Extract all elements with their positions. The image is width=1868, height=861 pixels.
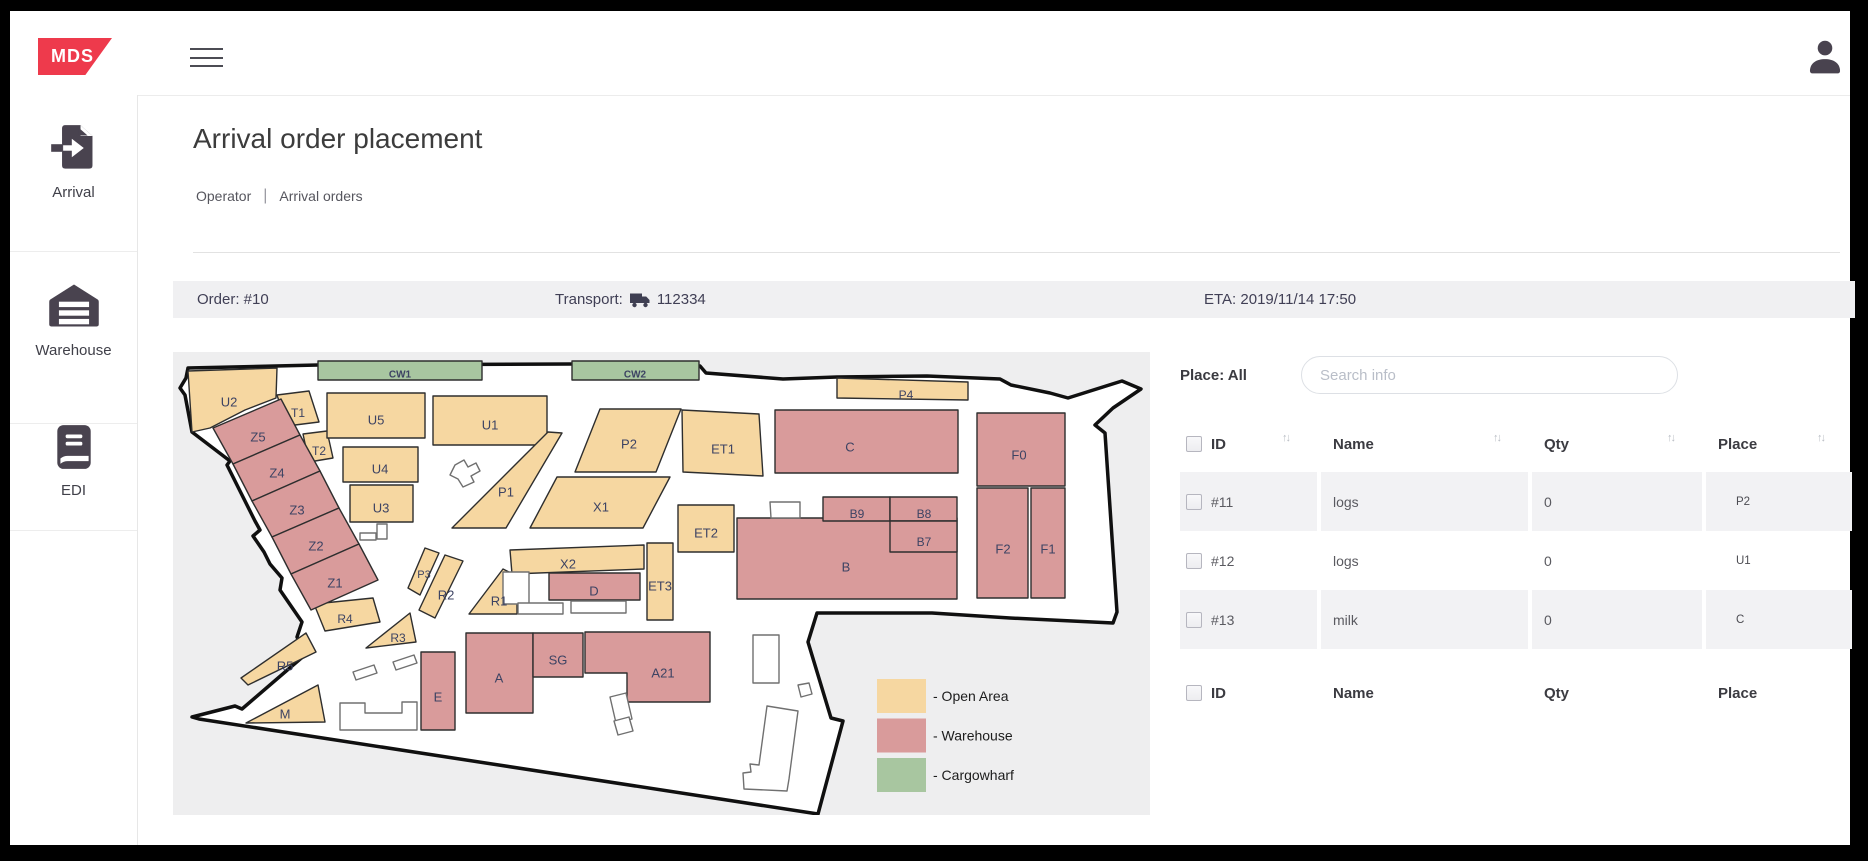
- zone-label-D: D: [589, 584, 598, 599]
- cell-name: milk: [1321, 612, 1358, 628]
- warehouse-icon: [46, 318, 102, 335]
- zone-label-R4: R4: [337, 612, 353, 626]
- zone-label-U4: U4: [372, 462, 389, 477]
- cell-name: logs: [1321, 553, 1359, 569]
- cell-qty: 0: [1532, 612, 1552, 628]
- cell-id: #11: [1211, 494, 1233, 510]
- legend-label: - Cargowharf: [933, 767, 1014, 783]
- cell-place: C: [1706, 614, 1744, 626]
- outline-building-0: [377, 524, 387, 539]
- zone-label-T2: T2: [312, 444, 326, 458]
- zone-X2[interactable]: [510, 545, 644, 574]
- sort-icon[interactable]: ↑↓: [1817, 432, 1824, 444]
- cell-qty: 0: [1532, 494, 1552, 510]
- zone-label-A21: A21: [651, 666, 674, 681]
- zone-label-R1: R1: [491, 594, 508, 609]
- sidebar-item-label: Arrival: [10, 184, 137, 201]
- legend-swatch-open: [877, 679, 926, 713]
- zone-label-Z3: Z3: [289, 503, 304, 518]
- table-row[interactable]: #11 logs 0 P2: [1180, 472, 1852, 531]
- zone-label-T1: T1: [291, 406, 305, 420]
- zone-label-U2: U2: [221, 395, 238, 410]
- warehouse-map: CW1CW2U2T1T2U5U4U3U1P1P2X1X2P3R2R1R4R3R5…: [173, 352, 1150, 815]
- sidebar-item-label: Warehouse: [10, 342, 137, 359]
- cell-id: #13: [1211, 612, 1234, 628]
- zone-label-F1: F1: [1040, 542, 1055, 557]
- sidebar-item-arrival[interactable]: Arrival: [10, 123, 137, 201]
- truck-icon: [629, 292, 651, 308]
- footer-header-name: Name: [1321, 674, 1528, 712]
- zone-label-U1: U1: [482, 418, 499, 433]
- sidebar: Arrival Warehouse: [10, 95, 138, 845]
- zone-label-E: E: [434, 690, 443, 705]
- zone-label-ET1: ET1: [711, 442, 735, 457]
- sort-icon[interactable]: ↑↓: [1282, 432, 1289, 444]
- legend-label: - Open Area: [933, 688, 1009, 704]
- sidebar-divider: [10, 530, 137, 531]
- transport-number: 112334: [657, 291, 706, 308]
- outline-building-6: [770, 502, 800, 518]
- sidebar-item-warehouse[interactable]: Warehouse: [10, 281, 137, 359]
- app-window: MDS Arrival: [10, 11, 1850, 845]
- cell-place: U1: [1706, 555, 1751, 567]
- outline-building-1: [360, 533, 376, 540]
- zone-label-Z1: Z1: [327, 576, 342, 591]
- breadcrumb: Operator | Arrival orders: [196, 187, 363, 205]
- zone-label-Z5: Z5: [250, 430, 265, 445]
- breadcrumb-separator: |: [263, 187, 267, 205]
- zone-label-ET2: ET2: [694, 526, 718, 541]
- sort-icon[interactable]: ↑↓: [1493, 432, 1500, 444]
- arrival-document-icon: [49, 160, 99, 177]
- column-header-id[interactable]: ID ↑↓: [1180, 426, 1317, 462]
- eta-info: ETA: 2019/11/14 17:50: [1204, 281, 1356, 318]
- zone-label-SG: SG: [549, 653, 568, 668]
- column-header-place[interactable]: Place ↑↓: [1706, 426, 1852, 462]
- zone-label-F0: F0: [1011, 448, 1026, 463]
- row-checkbox[interactable]: [1186, 612, 1202, 628]
- zone-label-M: M: [280, 707, 291, 722]
- row-checkbox[interactable]: [1186, 553, 1202, 569]
- select-all-checkbox[interactable]: [1186, 436, 1202, 452]
- zone-label-CW1: CW1: [389, 370, 412, 381]
- warehouse-map-svg: CW1CW2U2T1T2U5U4U3U1P1P2X1X2P3R2R1R4R3R5…: [173, 352, 1150, 815]
- legend-swatch-cargowharf: [877, 758, 926, 792]
- zone-label-U5: U5: [368, 413, 385, 428]
- zone-label-R5: R5: [277, 659, 294, 674]
- edi-book-icon: [51, 458, 97, 475]
- zone-label-F2: F2: [995, 542, 1010, 557]
- zone-label-CW2: CW2: [624, 370, 647, 381]
- zone-label-Z4: Z4: [269, 466, 284, 481]
- user-profile-icon[interactable]: [1806, 34, 1844, 78]
- zone-label-B7: B7: [917, 535, 932, 549]
- outline-building-5: [571, 601, 626, 613]
- legend-swatch-warehouse: [877, 719, 926, 753]
- table-row[interactable]: #12 logs 0 U1: [1180, 531, 1852, 590]
- breadcrumb-operator[interactable]: Operator: [196, 188, 251, 204]
- zone-label-C: C: [845, 440, 854, 455]
- sort-icon[interactable]: ↑↓: [1667, 432, 1674, 444]
- zone-label-P4: P4: [899, 388, 914, 402]
- outline-building-14: [614, 717, 633, 735]
- outline-building-4: [518, 603, 563, 614]
- table-header-row: ID ↑↓ Name ↑↓ Qty ↑↓ Place ↑↓: [1180, 426, 1852, 462]
- transport-label: Transport:: [555, 291, 623, 308]
- zone-label-A: A: [495, 671, 504, 686]
- sidebar-item-edi[interactable]: EDI: [10, 423, 137, 499]
- zone-label-P1: P1: [498, 485, 514, 500]
- order-number: Order: #10: [197, 281, 269, 318]
- zone-label-X1: X1: [593, 500, 609, 515]
- screenshot-frame: MDS Arrival: [0, 0, 1868, 861]
- zone-label-X2: X2: [560, 557, 576, 572]
- footer-header-place: Place: [1706, 674, 1852, 712]
- column-header-qty[interactable]: Qty ↑↓: [1532, 426, 1702, 462]
- zone-label-R2: R2: [438, 588, 455, 603]
- outline-building-8: [798, 683, 812, 697]
- zone-label-Z2: Z2: [308, 539, 323, 554]
- breadcrumb-arrival-orders[interactable]: Arrival orders: [279, 188, 362, 204]
- top-bar: MDS: [10, 11, 1850, 96]
- search-input[interactable]: [1301, 356, 1678, 394]
- sidebar-divider: [10, 251, 137, 252]
- order-info-bar: Order: #10 Transport: 112334 ETA: 2019/1…: [173, 281, 1855, 318]
- zone-label-R3: R3: [390, 631, 406, 645]
- cell-place: P2: [1706, 496, 1750, 508]
- outline-building-7: [753, 635, 779, 683]
- legend-label: - Warehouse: [933, 728, 1013, 744]
- cell-name: logs: [1321, 494, 1359, 510]
- zone-label-P2: P2: [621, 437, 637, 452]
- table-row[interactable]: #13 milk 0 C: [1180, 590, 1852, 649]
- sidebar-item-label: EDI: [10, 482, 137, 499]
- zone-C[interactable]: [775, 410, 958, 473]
- cell-qty: 0: [1532, 553, 1552, 569]
- column-header-name[interactable]: Name ↑↓: [1321, 426, 1528, 462]
- heading-divider: [193, 252, 1840, 253]
- table-footer-row: ID Name Qty Place: [1180, 674, 1852, 712]
- row-checkbox[interactable]: [1186, 494, 1202, 510]
- zone-label-B8: B8: [917, 507, 932, 521]
- zone-label-ET3: ET3: [648, 579, 672, 594]
- footer-header-qty: Qty: [1532, 674, 1702, 712]
- transport-info: Transport: 112334: [555, 281, 706, 318]
- mds-logo[interactable]: MDS: [38, 38, 112, 75]
- footer-header-id: ID: [1180, 674, 1317, 712]
- page-title: Arrival order placement: [193, 123, 482, 155]
- zone-label-B: B: [842, 560, 851, 575]
- table-body: #11 logs 0 P2 #12 logs 0 U1 #13 milk 0 C: [1180, 472, 1852, 649]
- place-filter-label[interactable]: Place: All: [1180, 367, 1247, 384]
- hamburger-menu-icon[interactable]: [190, 48, 223, 67]
- zone-label-B9: B9: [850, 507, 865, 521]
- zone-label-P3: P3: [417, 569, 430, 581]
- zone-label-U3: U3: [373, 501, 390, 516]
- cell-id: #12: [1211, 553, 1234, 569]
- footer-checkbox[interactable]: [1186, 685, 1202, 701]
